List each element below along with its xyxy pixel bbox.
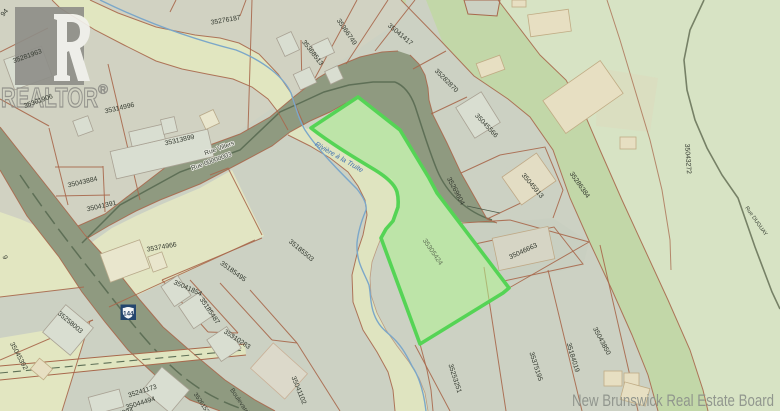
svg-text:R: R xyxy=(100,86,106,95)
svg-text:New Brunswick Real Estate Boar: New Brunswick Real Estate Board xyxy=(572,392,774,410)
svg-text:144: 144 xyxy=(123,311,134,318)
